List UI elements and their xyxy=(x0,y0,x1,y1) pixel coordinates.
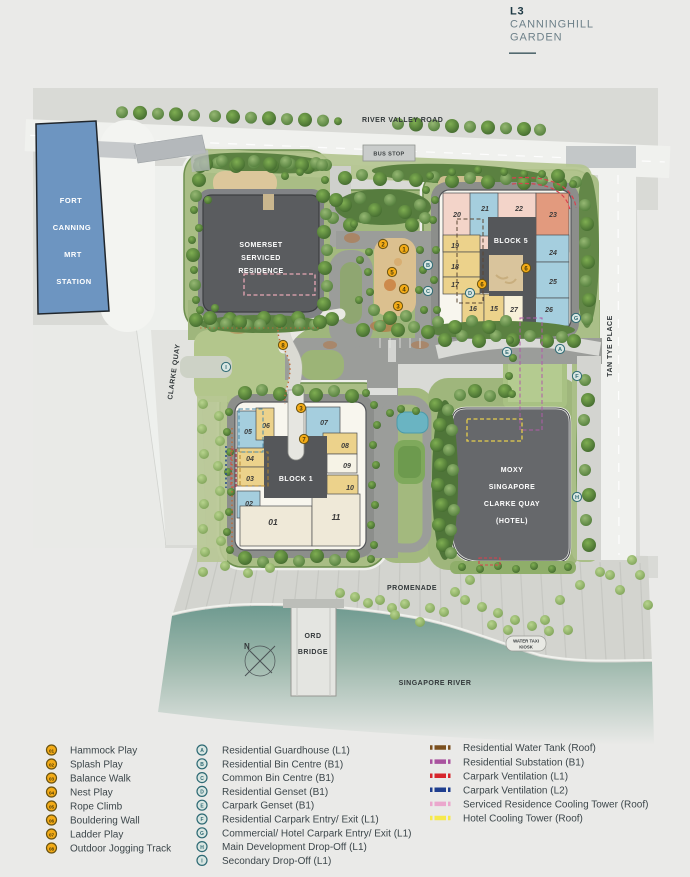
svg-text:PROMENADE: PROMENADE xyxy=(387,585,437,592)
svg-text:KIOSK: KIOSK xyxy=(519,645,534,650)
svg-text:BUS STOP: BUS STOP xyxy=(373,152,404,158)
svg-text:23: 23 xyxy=(548,212,557,219)
svg-text:04: 04 xyxy=(49,791,55,796)
svg-text:Serviced Residence Cooling Tow: Serviced Residence Cooling Tower (Roof) xyxy=(463,800,648,811)
svg-text:B: B xyxy=(200,762,204,768)
svg-text:03: 03 xyxy=(49,777,55,782)
svg-text:Residential Genset (B1): Residential Genset (B1) xyxy=(222,787,328,798)
svg-text:H: H xyxy=(200,845,204,851)
svg-text:GARDEN: GARDEN xyxy=(510,32,562,44)
svg-text:Commercial/ Hotel Carpark Entr: Commercial/ Hotel Carpark Entry/ Exit (L… xyxy=(222,828,412,839)
svg-text:Balance Walk: Balance Walk xyxy=(70,774,132,785)
svg-text:Hotel Cooling Tower (Roof): Hotel Cooling Tower (Roof) xyxy=(463,814,583,825)
svg-text:07: 07 xyxy=(320,420,329,427)
svg-text:Ladder Play: Ladder Play xyxy=(70,830,123,841)
svg-text:FORT: FORT xyxy=(60,196,82,205)
svg-text:26: 26 xyxy=(544,307,553,314)
svg-text:10: 10 xyxy=(346,485,354,492)
svg-text:Common Bin Centre (B1): Common Bin Centre (B1) xyxy=(222,773,334,784)
svg-text:Carpark Genset (B1): Carpark Genset (B1) xyxy=(222,801,314,812)
svg-text:D: D xyxy=(468,291,472,297)
svg-text:ORD: ORD xyxy=(304,633,321,640)
svg-text:CLARKE QUAY: CLARKE QUAY xyxy=(484,501,540,508)
svg-text:02: 02 xyxy=(49,763,55,768)
svg-text:19: 19 xyxy=(451,243,459,250)
svg-text:TAN TYE PLACE: TAN TYE PLACE xyxy=(607,315,614,377)
svg-text:Carpark Ventilation (L2): Carpark Ventilation (L2) xyxy=(463,786,568,797)
svg-text:A: A xyxy=(558,347,562,353)
svg-text:08: 08 xyxy=(341,443,349,450)
svg-text:Bouldering Wall: Bouldering Wall xyxy=(70,816,140,827)
svg-text:D: D xyxy=(200,790,204,796)
svg-text:F: F xyxy=(575,374,579,380)
svg-text:SINGAPORE: SINGAPORE xyxy=(489,484,536,491)
svg-text:22: 22 xyxy=(514,206,523,213)
svg-text:Splash Play: Splash Play xyxy=(70,760,123,771)
svg-text:Carpark Ventilation (L1): Carpark Ventilation (L1) xyxy=(463,771,568,782)
svg-text:G: G xyxy=(200,831,204,837)
svg-text:15: 15 xyxy=(490,306,498,313)
svg-text:04: 04 xyxy=(246,456,254,463)
svg-text:WATER TAXI: WATER TAXI xyxy=(513,639,539,644)
svg-text:BRIDGE: BRIDGE xyxy=(298,649,328,656)
svg-text:05: 05 xyxy=(49,805,55,810)
svg-text:CANNING: CANNING xyxy=(53,223,92,232)
svg-text:06: 06 xyxy=(49,819,55,824)
svg-text:BLOCK 5: BLOCK 5 xyxy=(494,238,528,245)
svg-text:C: C xyxy=(200,776,204,782)
svg-text:27: 27 xyxy=(509,307,519,314)
svg-text:E: E xyxy=(505,350,509,356)
svg-text:Residential Bin Centre (B1): Residential Bin Centre (B1) xyxy=(222,759,343,770)
svg-text:RIVER VALLEY ROAD: RIVER VALLEY ROAD xyxy=(362,117,443,124)
svg-text:N: N xyxy=(244,642,250,651)
svg-text:G: G xyxy=(574,316,578,322)
svg-text:25: 25 xyxy=(548,279,557,286)
svg-text:CANNINGHILL: CANNINGHILL xyxy=(510,19,594,31)
svg-text:B: B xyxy=(426,263,430,269)
svg-text:01: 01 xyxy=(268,517,278,527)
svg-text:BLOCK 1: BLOCK 1 xyxy=(279,476,313,483)
svg-text:SERVICED: SERVICED xyxy=(241,255,281,262)
svg-text:11: 11 xyxy=(332,512,341,522)
svg-text:L3: L3 xyxy=(510,6,524,18)
svg-text:Residential Water Tank (Roof): Residential Water Tank (Roof) xyxy=(463,743,596,754)
svg-text:Main Development Drop-Off (L1): Main Development Drop-Off (L1) xyxy=(222,842,367,853)
svg-text:SINGAPORE RIVER: SINGAPORE RIVER xyxy=(399,680,472,687)
svg-text:Hammock Play: Hammock Play xyxy=(70,746,137,757)
svg-text:03: 03 xyxy=(246,476,254,483)
svg-text:02: 02 xyxy=(245,501,253,508)
svg-text:STATION: STATION xyxy=(56,277,91,286)
svg-text:(HOTEL): (HOTEL) xyxy=(496,518,528,525)
svg-text:A: A xyxy=(200,748,204,754)
svg-text:24: 24 xyxy=(548,250,557,257)
svg-text:MOXY: MOXY xyxy=(501,467,524,474)
svg-text:Nest Play: Nest Play xyxy=(70,788,113,799)
svg-text:07: 07 xyxy=(49,833,55,838)
svg-text:18: 18 xyxy=(451,264,459,271)
svg-text:01: 01 xyxy=(49,749,55,754)
svg-text:H: H xyxy=(575,495,579,501)
svg-text:Residential Carpark Entry/ Exi: Residential Carpark Entry/ Exit (L1) xyxy=(222,815,379,826)
svg-text:F: F xyxy=(200,817,203,823)
svg-text:16: 16 xyxy=(469,306,477,313)
svg-text:05: 05 xyxy=(244,429,252,436)
svg-text:MRT: MRT xyxy=(64,250,82,259)
svg-text:21: 21 xyxy=(480,206,489,213)
svg-text:Rope Climb: Rope Climb xyxy=(70,802,123,813)
svg-text:20: 20 xyxy=(452,212,461,219)
svg-text:09: 09 xyxy=(343,463,351,470)
svg-text:Secondary Drop-Off (L1): Secondary Drop-Off (L1) xyxy=(222,856,331,867)
svg-text:17: 17 xyxy=(451,282,460,289)
svg-text:08: 08 xyxy=(49,847,55,852)
svg-text:C: C xyxy=(426,289,430,295)
svg-text:Residential Guardhouse (L1): Residential Guardhouse (L1) xyxy=(222,746,350,757)
svg-text:SOMERSET: SOMERSET xyxy=(239,242,283,249)
svg-text:Residential Substation (B1): Residential Substation (B1) xyxy=(463,757,584,768)
svg-text:Outdoor Jogging Track: Outdoor Jogging Track xyxy=(70,844,172,855)
